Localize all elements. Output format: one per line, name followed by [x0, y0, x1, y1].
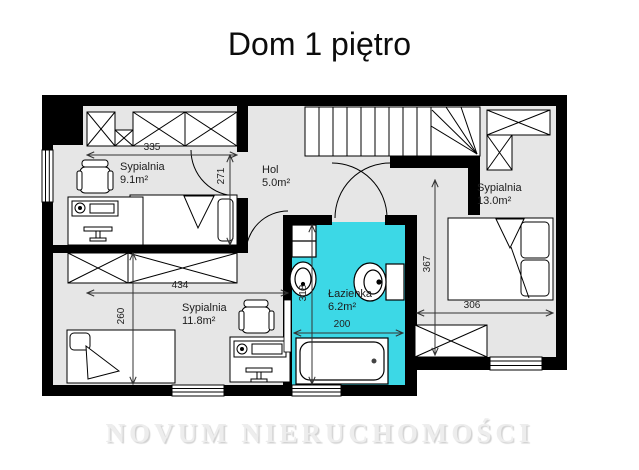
wardrobe-icon	[415, 325, 487, 357]
wardrobe-icon	[185, 112, 237, 146]
wardrobe-icon	[133, 112, 185, 146]
pillow-icon	[521, 222, 549, 258]
desk-icon	[68, 197, 143, 245]
dimension-label: 200	[322, 319, 362, 331]
dimension-label: 260	[116, 296, 128, 336]
room-area: 5.0m²	[262, 177, 290, 189]
dimension-label: 271	[216, 156, 228, 196]
room-label-hall: Hol 5.0m²	[262, 164, 290, 190]
room-name: Sypialnia	[182, 302, 227, 314]
bathtub-icon	[296, 338, 388, 384]
window-icon	[292, 385, 341, 396]
room-area: 13.0m²	[477, 195, 511, 207]
window-icon	[490, 357, 542, 370]
room-name: Sypialnia	[120, 161, 165, 173]
bed-icon	[448, 218, 553, 300]
room-label-bedroom-bottom-left: Sypialnia 11.8m²	[182, 302, 227, 328]
room-name: Hol	[262, 164, 279, 176]
room-area: 6.2m²	[328, 301, 356, 313]
dimension-label: 335	[132, 142, 172, 154]
room-label-bathroom: Łazienka 6.2m²	[328, 288, 372, 314]
wardrobe-icon	[487, 110, 550, 135]
dimension-label: 434	[160, 280, 200, 292]
room-name: Sypialnia	[477, 182, 522, 194]
office-chair-icon	[77, 160, 113, 193]
dimension-label: 306	[452, 300, 492, 312]
bed-icon	[130, 195, 237, 245]
wardrobe-icon	[68, 253, 128, 283]
wardrobe-icon	[487, 135, 512, 170]
floorplan-page: Dom 1 piętro	[0, 0, 639, 470]
room-label-bedroom-right: Sypialnia 13.0m²	[477, 182, 522, 208]
floorplan-drawing	[0, 0, 639, 470]
wardrobe-icon	[115, 130, 133, 146]
room-area: 11.8m²	[182, 315, 215, 327]
room-area: 9.1m²	[120, 174, 148, 186]
window-icon	[172, 385, 224, 396]
dimension-label: 318	[298, 273, 310, 313]
wardrobe-icon	[87, 112, 115, 146]
stairs-icon	[305, 107, 480, 156]
bed-icon	[67, 330, 175, 383]
desk-icon	[230, 337, 290, 382]
window-icon	[42, 150, 53, 202]
pillow-icon	[521, 260, 549, 296]
radiator-icon	[284, 300, 291, 352]
room-name: Łazienka	[328, 288, 372, 300]
room-label-bedroom-top-left: Sypialnia 9.1m²	[120, 161, 165, 187]
wardrobe-icon	[128, 253, 237, 283]
watermark: NOVUM NIERUCHOMOŚCI	[0, 418, 639, 449]
pillow-icon	[218, 199, 233, 241]
dimension-label: 367	[422, 244, 434, 284]
